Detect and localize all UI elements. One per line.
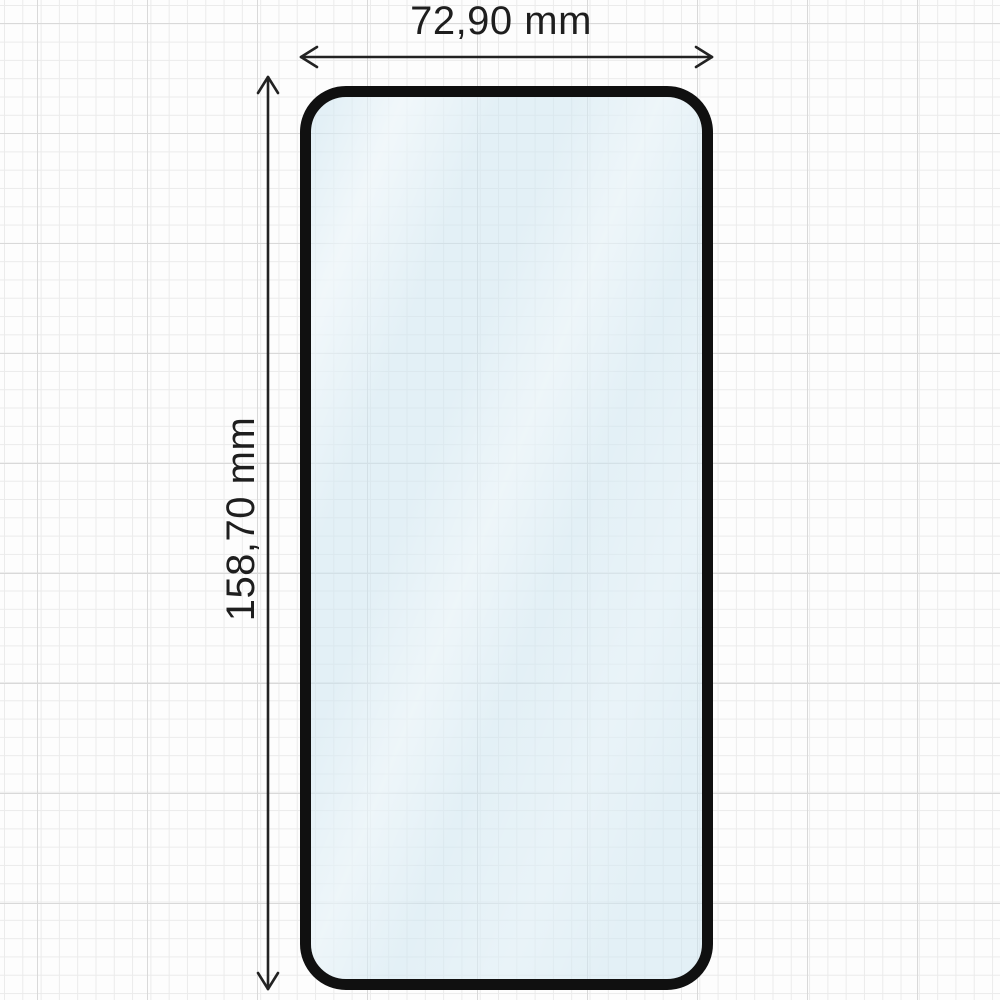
diagram-canvas: 72,90 mm 158,70 mm [0,0,1000,1000]
height-arrow-top-head [258,77,278,93]
screen-protector-outline [300,86,713,990]
width-dimension-label: 72,90 mm [410,1,592,41]
width-arrow-left-head [301,47,317,67]
width-dimension-arrow [301,47,712,67]
height-arrow-bottom-head [258,973,278,989]
glass-reflection [300,86,713,990]
height-dimension-label: 158,70 mm [221,417,261,622]
width-arrow-right-head [696,47,712,67]
